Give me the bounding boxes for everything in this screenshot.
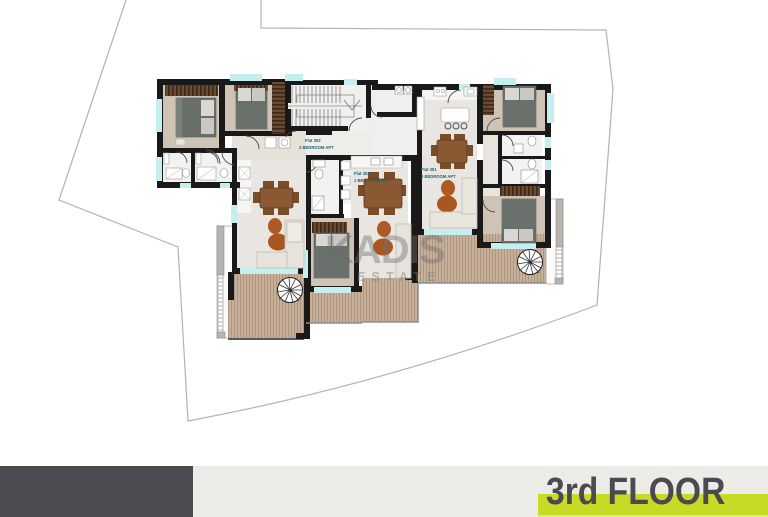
- svg-text:1 BEDROOM APT: 1 BEDROOM APT: [354, 178, 389, 183]
- svg-text:Flat 303: Flat 303: [305, 138, 321, 143]
- svg-text:2 BEDROOM APT: 2 BEDROOM APT: [299, 145, 334, 150]
- svg-text:Flat 301: Flat 301: [421, 167, 437, 172]
- svg-text:Flat 302: Flat 302: [354, 171, 370, 176]
- svg-text:2 BEDROOM APT: 2 BEDROOM APT: [421, 174, 456, 179]
